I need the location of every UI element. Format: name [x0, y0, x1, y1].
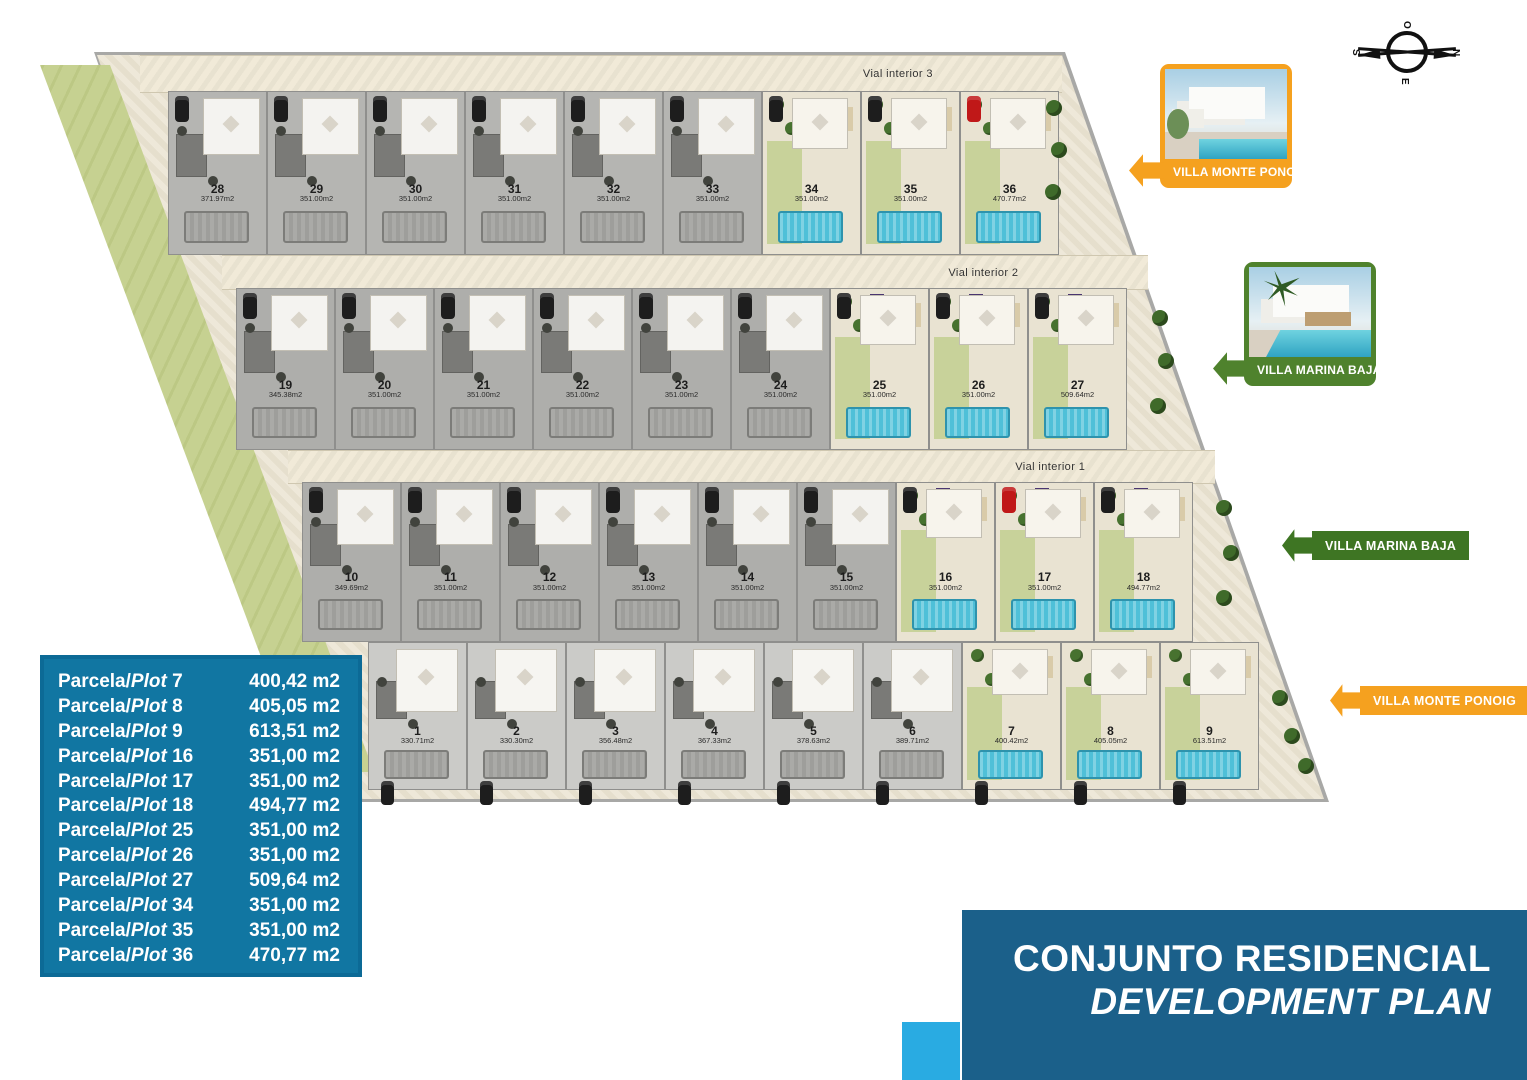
compass-south-label: S: [1350, 49, 1361, 56]
plot-16: 16351.00m2: [896, 482, 995, 642]
table-row-label: Parcela/Plot 34: [58, 895, 193, 917]
pool: [549, 407, 614, 438]
table-label-part: Parcela/: [58, 671, 131, 692]
plot-6: 6389.71m2: [863, 642, 962, 790]
plot-label: 11351.00m2: [402, 571, 499, 591]
tree-icon: [1046, 100, 1062, 116]
plot-label: 23351.00m2: [633, 379, 730, 399]
plot-24: 24351.00m2: [731, 288, 830, 450]
shrub-icon: [773, 677, 783, 687]
plot-label: 25351.00m2: [831, 379, 928, 399]
table-row-value: 351,00 m2: [249, 920, 340, 942]
table-row-value: 494,77 m2: [249, 795, 340, 817]
shrub-icon: [872, 677, 882, 687]
pool: [1176, 750, 1241, 779]
plot-area: 351.00m2: [897, 584, 994, 592]
table-row-value: 405,05 m2: [249, 696, 340, 718]
table-row: Parcela/Plot 16351,00 m2: [58, 746, 340, 771]
car-icon: [876, 781, 889, 805]
plot-area: 351.00m2: [763, 195, 860, 203]
plot-row: 28371.97m229351.00m230351.00m231351.00m2…: [168, 91, 1059, 255]
table-label-part: 36: [167, 945, 193, 966]
table-row: Parcela/Plot 27509,64 m2: [58, 870, 340, 895]
title-english: DEVELOPMENT PLAN: [962, 981, 1491, 1024]
compass-rose: O N S E: [1350, 14, 1465, 89]
pool: [582, 750, 647, 779]
house-roof: [693, 649, 755, 712]
table-row: Parcela/Plot 36470,77 m2: [58, 945, 340, 970]
pool: [382, 211, 447, 243]
plot-area: 371.97m2: [169, 195, 266, 203]
plot-25: 25351.00m2: [830, 288, 929, 450]
plot-label: 19345.38m2: [237, 379, 334, 399]
table-label-part: 34: [167, 895, 193, 916]
plot-label: 8405.05m2: [1062, 725, 1159, 745]
table-row: Parcela/Plot 25351,00 m2: [58, 820, 340, 845]
plot-label: 15351.00m2: [798, 571, 895, 591]
house-roof: [634, 489, 691, 545]
plot-4: 4367.33m2: [665, 642, 764, 790]
table-label-part: Parcela/: [58, 696, 131, 717]
tree-icon: [971, 649, 984, 662]
plot-label: 21351.00m2: [435, 379, 532, 399]
pool: [879, 750, 944, 779]
car-icon: [804, 487, 818, 513]
plot-label: 13351.00m2: [600, 571, 697, 591]
plot-area: 349.69m2: [303, 584, 400, 592]
table-label-part: Parcela/: [58, 945, 131, 966]
plot-area: 351.00m2: [268, 195, 365, 203]
card-label: VILLA MONTE PONOIG: [1164, 159, 1288, 184]
plot-17: 17351.00m2: [995, 482, 1094, 642]
plot-8: 8405.05m2: [1061, 642, 1160, 790]
plot-label: 29351.00m2: [268, 183, 365, 203]
house-roof: [959, 295, 1015, 345]
table-row-label: Parcela/Plot 17: [58, 771, 193, 793]
plot-5: 5378.63m2: [764, 642, 863, 790]
table-row: Parcela/Plot 9613,51 m2: [58, 721, 340, 746]
plot-area: 351.00m2: [831, 391, 928, 399]
photo-pool: [1199, 139, 1287, 159]
tree-icon: [1070, 649, 1083, 662]
table-row-value: 509,64 m2: [249, 870, 340, 892]
pool: [1110, 599, 1175, 630]
plot-area: 351.00m2: [798, 584, 895, 592]
plot-area: 351.00m2: [534, 391, 631, 399]
plot-14: 14351.00m2: [698, 482, 797, 642]
shrub-icon: [344, 323, 354, 333]
table-label-part: Parcela/: [58, 746, 131, 767]
table-label-part: 8: [167, 696, 183, 717]
shrub-icon: [375, 126, 385, 136]
plot-27: 27509.64m2: [1028, 288, 1127, 450]
table-label-part: Plot: [131, 671, 167, 692]
plot-26: 26351.00m2: [929, 288, 1028, 450]
development-plan-page: { "compass": {"top": "O", "right": "N", …: [0, 0, 1527, 1080]
tag-villa-monte-ponoig: VILLA MONTE PONOIG: [1360, 686, 1527, 715]
pool: [681, 750, 746, 779]
car-icon: [243, 293, 257, 319]
house-roof: [337, 489, 394, 545]
shrub-icon: [377, 677, 387, 687]
shrub-icon: [542, 323, 552, 333]
car-icon: [408, 487, 422, 513]
compass-north-label: N: [1450, 49, 1461, 56]
shrub-icon: [806, 517, 816, 527]
table-label-part: Parcela/: [58, 771, 131, 792]
house-roof: [698, 98, 755, 155]
car-icon: [936, 293, 950, 319]
plot-area: 405.05m2: [1062, 737, 1159, 745]
car-icon: [381, 781, 394, 805]
pool: [252, 407, 317, 438]
tree-icon: [1045, 184, 1061, 200]
table-row-value: 351,00 m2: [249, 845, 340, 867]
photo-pool: [1266, 330, 1371, 357]
road-label: Vial interior 2: [948, 267, 1018, 279]
house-roof: [766, 295, 823, 351]
plot-9: 9613.51m2: [1160, 642, 1259, 790]
pool: [318, 599, 383, 630]
car-icon: [769, 96, 783, 122]
tree-icon: [1216, 590, 1232, 606]
car-icon: [373, 96, 387, 122]
table-label-part: Plot: [131, 895, 167, 916]
car-icon: [1173, 781, 1186, 805]
plot-area: 470.77m2: [961, 195, 1058, 203]
plot-area: 389.71m2: [864, 737, 961, 745]
plot-row: 10349.69m211351.00m212351.00m213351.00m2…: [302, 482, 1193, 642]
tag-villa-marina-baja: VILLA MARINA BAJA: [1312, 531, 1469, 560]
house-roof: [401, 98, 458, 155]
plot-label: 31351.00m2: [466, 183, 563, 203]
tree-icon: [1223, 545, 1239, 561]
plot-label: 34351.00m2: [763, 183, 860, 203]
table-row-label: Parcela/Plot 27: [58, 870, 193, 892]
plot-area: 330.30m2: [468, 737, 565, 745]
pool: [580, 211, 645, 243]
road-vial-interior-2: Vial interior 2: [222, 255, 1148, 290]
plot-label: 26351.00m2: [930, 379, 1027, 399]
plot-label: 10349.69m2: [303, 571, 400, 591]
car-icon: [967, 96, 981, 122]
road-vial-interior-3: Vial interior 3: [140, 55, 1062, 93]
house-roof: [1091, 649, 1147, 695]
pool: [714, 599, 779, 630]
house-roof: [733, 489, 790, 545]
car-icon: [507, 487, 521, 513]
pool: [978, 750, 1043, 779]
plot-3: 3356.48m2: [566, 642, 665, 790]
car-icon: [639, 293, 653, 319]
table-row-label: Parcela/Plot 16: [58, 746, 193, 768]
table-label-part: Parcela/: [58, 795, 131, 816]
plot-label: 36470.77m2: [961, 183, 1058, 203]
plot-area: 351.00m2: [565, 195, 662, 203]
table-row: Parcela/Plot 18494,77 m2: [58, 795, 340, 820]
house-roof: [860, 295, 916, 345]
plot-area: 330.71m2: [369, 737, 466, 745]
tree-icon: [1051, 142, 1067, 158]
tree-icon: [1298, 758, 1314, 774]
table-row-label: Parcela/Plot 26: [58, 845, 193, 867]
road-vial-interior-1: Vial interior 1: [288, 450, 1215, 484]
house-roof: [926, 489, 982, 538]
house-roof: [436, 489, 493, 545]
plot-29: 29351.00m2: [267, 91, 366, 255]
pool: [877, 211, 942, 243]
shrub-icon: [575, 677, 585, 687]
plot-30: 30351.00m2: [366, 91, 465, 255]
table-row-label: Parcela/Plot 36: [58, 945, 193, 967]
plot-21: 21351.00m2: [434, 288, 533, 450]
car-icon: [868, 96, 882, 122]
plot-35: 35351.00m2: [861, 91, 960, 255]
plot-area: 351.00m2: [466, 195, 563, 203]
pool: [813, 599, 878, 630]
plot-label: 16351.00m2: [897, 571, 994, 591]
pool: [450, 407, 515, 438]
car-icon: [441, 293, 455, 319]
plot-10: 10349.69m2: [302, 482, 401, 642]
compass-east-label: E: [1399, 78, 1410, 85]
plot-7: 7400.42m2: [962, 642, 1061, 790]
plot-36: 36470.77m2: [960, 91, 1059, 255]
table-label-part: Plot: [131, 795, 167, 816]
pool: [648, 407, 713, 438]
cyan-accent-square: [902, 1022, 960, 1080]
table-label-part: Plot: [131, 945, 167, 966]
plot-row: 1330.71m22330.30m23356.48m24367.33m25378…: [368, 642, 1259, 790]
table-row-label: Parcela/Plot 35: [58, 920, 193, 942]
shrub-icon: [443, 323, 453, 333]
table-label-part: Plot: [131, 820, 167, 841]
shrub-icon: [672, 126, 682, 136]
road-label: Vial interior 1: [1015, 461, 1085, 473]
plot-label: 27509.64m2: [1029, 379, 1126, 399]
pool: [780, 750, 845, 779]
plot-area: 351.00m2: [862, 195, 959, 203]
plot-label: 24351.00m2: [732, 379, 829, 399]
pool: [778, 211, 843, 243]
plot-1: 1330.71m2: [368, 642, 467, 790]
table-row-label: Parcela/Plot 18: [58, 795, 193, 817]
card-label: VILLA MARINA BAJA: [1248, 357, 1372, 382]
shrub-icon: [608, 517, 618, 527]
tree-icon: [1284, 728, 1300, 744]
shrub-icon: [474, 126, 484, 136]
plot-31: 31351.00m2: [465, 91, 564, 255]
table-label-part: 9: [167, 721, 183, 742]
house-roof: [495, 649, 557, 712]
plot-area: 509.64m2: [1029, 391, 1126, 399]
plot-label: 6389.71m2: [864, 725, 961, 745]
plot-33: 33351.00m2: [663, 91, 762, 255]
plot-label: 4367.33m2: [666, 725, 763, 745]
car-icon: [480, 781, 493, 805]
table-label-part: 26: [167, 845, 193, 866]
house-roof: [594, 649, 656, 712]
table-label-part: Plot: [131, 870, 167, 891]
house-roof: [599, 98, 656, 155]
table-row-value: 470,77 m2: [249, 945, 340, 967]
car-icon: [579, 781, 592, 805]
table-row: Parcela/Plot 8405,05 m2: [58, 696, 340, 721]
plot-label: 28371.97m2: [169, 183, 266, 203]
table-label-part: 25: [167, 820, 193, 841]
plot-15: 15351.00m2: [797, 482, 896, 642]
plot-area: 345.38m2: [237, 391, 334, 399]
plot-area: 351.00m2: [600, 584, 697, 592]
car-icon: [975, 781, 988, 805]
plot-28: 28371.97m2: [168, 91, 267, 255]
plot-area-table: Parcela/Plot 7400,42 m2Parcela/Plot 8405…: [40, 655, 362, 977]
pool: [184, 211, 249, 243]
plot-area: 367.33m2: [666, 737, 763, 745]
plot-area: 351.00m2: [699, 584, 796, 592]
house-roof: [469, 295, 526, 351]
table-label-part: Plot: [131, 845, 167, 866]
table-label-part: Plot: [131, 746, 167, 767]
plot-label: 33351.00m2: [664, 183, 761, 203]
car-icon: [472, 96, 486, 122]
plot-18: 18494.77m2: [1094, 482, 1193, 642]
tag-label: VILLA MONTE PONOIG: [1373, 694, 1516, 708]
plot-23: 23351.00m2: [632, 288, 731, 450]
tree-icon: [1150, 398, 1166, 414]
plot-label: 5378.63m2: [765, 725, 862, 745]
plot-32: 32351.00m2: [564, 91, 663, 255]
pool: [615, 599, 680, 630]
plot-13: 13351.00m2: [599, 482, 698, 642]
plot-label: 1330.71m2: [369, 725, 466, 745]
plot-area: 351.00m2: [633, 391, 730, 399]
house-roof: [891, 649, 953, 712]
pool: [747, 407, 812, 438]
house-roof: [302, 98, 359, 155]
plot-20: 20351.00m2: [335, 288, 434, 450]
tree-icon: [1216, 500, 1232, 516]
car-icon: [309, 487, 323, 513]
house-roof: [568, 295, 625, 351]
car-icon: [274, 96, 288, 122]
table-label-part: Parcela/: [58, 870, 131, 891]
table-label-part: Parcela/: [58, 845, 131, 866]
house-roof: [203, 98, 260, 155]
house-roof: [891, 98, 947, 149]
table-row-value: 613,51 m2: [249, 721, 340, 743]
house-roof: [792, 98, 848, 149]
plot-label: 20351.00m2: [336, 379, 433, 399]
title-block: CONJUNTO RESIDENCIAL DEVELOPMENT PLAN: [962, 910, 1527, 1080]
car-icon: [606, 487, 620, 513]
pool: [417, 599, 482, 630]
car-icon: [571, 96, 585, 122]
plot-area: 351.00m2: [336, 391, 433, 399]
car-icon: [175, 96, 189, 122]
house-roof: [396, 649, 458, 712]
table-row-label: Parcela/Plot 25: [58, 820, 193, 842]
car-icon: [540, 293, 554, 319]
photo-bush: [1167, 109, 1189, 139]
car-icon: [777, 781, 790, 805]
plot-row: 19345.38m220351.00m221351.00m222351.00m2…: [236, 288, 1127, 450]
table-label-part: Parcela/: [58, 721, 131, 742]
road-label: Vial interior 3: [863, 68, 933, 80]
compass-icon: O N S E: [1350, 14, 1465, 89]
pool: [976, 211, 1041, 243]
pool: [1011, 599, 1076, 630]
pool: [351, 407, 416, 438]
shrub-icon: [311, 517, 321, 527]
table-label-part: Plot: [131, 721, 167, 742]
pool: [283, 211, 348, 243]
title-spanish: CONJUNTO RESIDENCIAL: [962, 938, 1491, 981]
table-row: Parcela/Plot 17351,00 m2: [58, 771, 340, 796]
table-label-part: Parcela/: [58, 895, 131, 916]
car-icon: [705, 487, 719, 513]
table-label-part: 27: [167, 870, 193, 891]
plot-label: 30351.00m2: [367, 183, 464, 203]
pool: [945, 407, 1010, 438]
plot-area: 613.51m2: [1161, 737, 1258, 745]
shrub-icon: [276, 126, 286, 136]
plot-12: 12351.00m2: [500, 482, 599, 642]
pool: [846, 407, 911, 438]
table-label-part: Parcela/: [58, 820, 131, 841]
car-icon: [837, 293, 851, 319]
pool: [1077, 750, 1142, 779]
pool: [384, 750, 449, 779]
table-row-value: 400,42 m2: [249, 671, 340, 693]
plot-label: 18494.77m2: [1095, 571, 1192, 591]
table-label-part: 18: [167, 795, 193, 816]
table-row: Parcela/Plot 35351,00 m2: [58, 920, 340, 945]
legend-card-villa-monte-ponoig: VILLA MONTE PONOIG: [1160, 64, 1292, 188]
table-row-label: Parcela/Plot 9: [58, 721, 183, 743]
house-roof: [535, 489, 592, 545]
plot-area: 351.00m2: [664, 195, 761, 203]
car-icon: [670, 96, 684, 122]
house-roof: [1058, 295, 1114, 345]
plot-area: 351.00m2: [435, 391, 532, 399]
plot-area: 400.42m2: [963, 737, 1060, 745]
legend-card-villa-marina-baja: VILLA MARINA BAJA: [1244, 262, 1376, 386]
plot-area: 378.63m2: [765, 737, 862, 745]
shrub-icon: [410, 517, 420, 527]
house-roof: [1124, 489, 1180, 538]
shrub-icon: [177, 126, 187, 136]
plot-label: 17351.00m2: [996, 571, 1093, 591]
car-icon: [342, 293, 356, 319]
table-label-part: 35: [167, 920, 193, 941]
table-rows: Parcela/Plot 7400,42 m2Parcela/Plot 8405…: [58, 671, 340, 970]
plot-label: 32351.00m2: [565, 183, 662, 203]
table-label-part: 7: [167, 671, 183, 692]
plot-area: 351.00m2: [367, 195, 464, 203]
compass-west-label: O: [1401, 21, 1412, 29]
table-row-value: 351,00 m2: [249, 746, 340, 768]
table-row-label: Parcela/Plot 7: [58, 671, 183, 693]
villa-photo: [1249, 267, 1371, 357]
plot-label: 9613.51m2: [1161, 725, 1258, 745]
plot-label: 14351.00m2: [699, 571, 796, 591]
shrub-icon: [509, 517, 519, 527]
photo-stone-wall: [1305, 312, 1351, 326]
plot-2: 2330.30m2: [467, 642, 566, 790]
house-roof: [792, 649, 854, 712]
pool: [483, 750, 548, 779]
